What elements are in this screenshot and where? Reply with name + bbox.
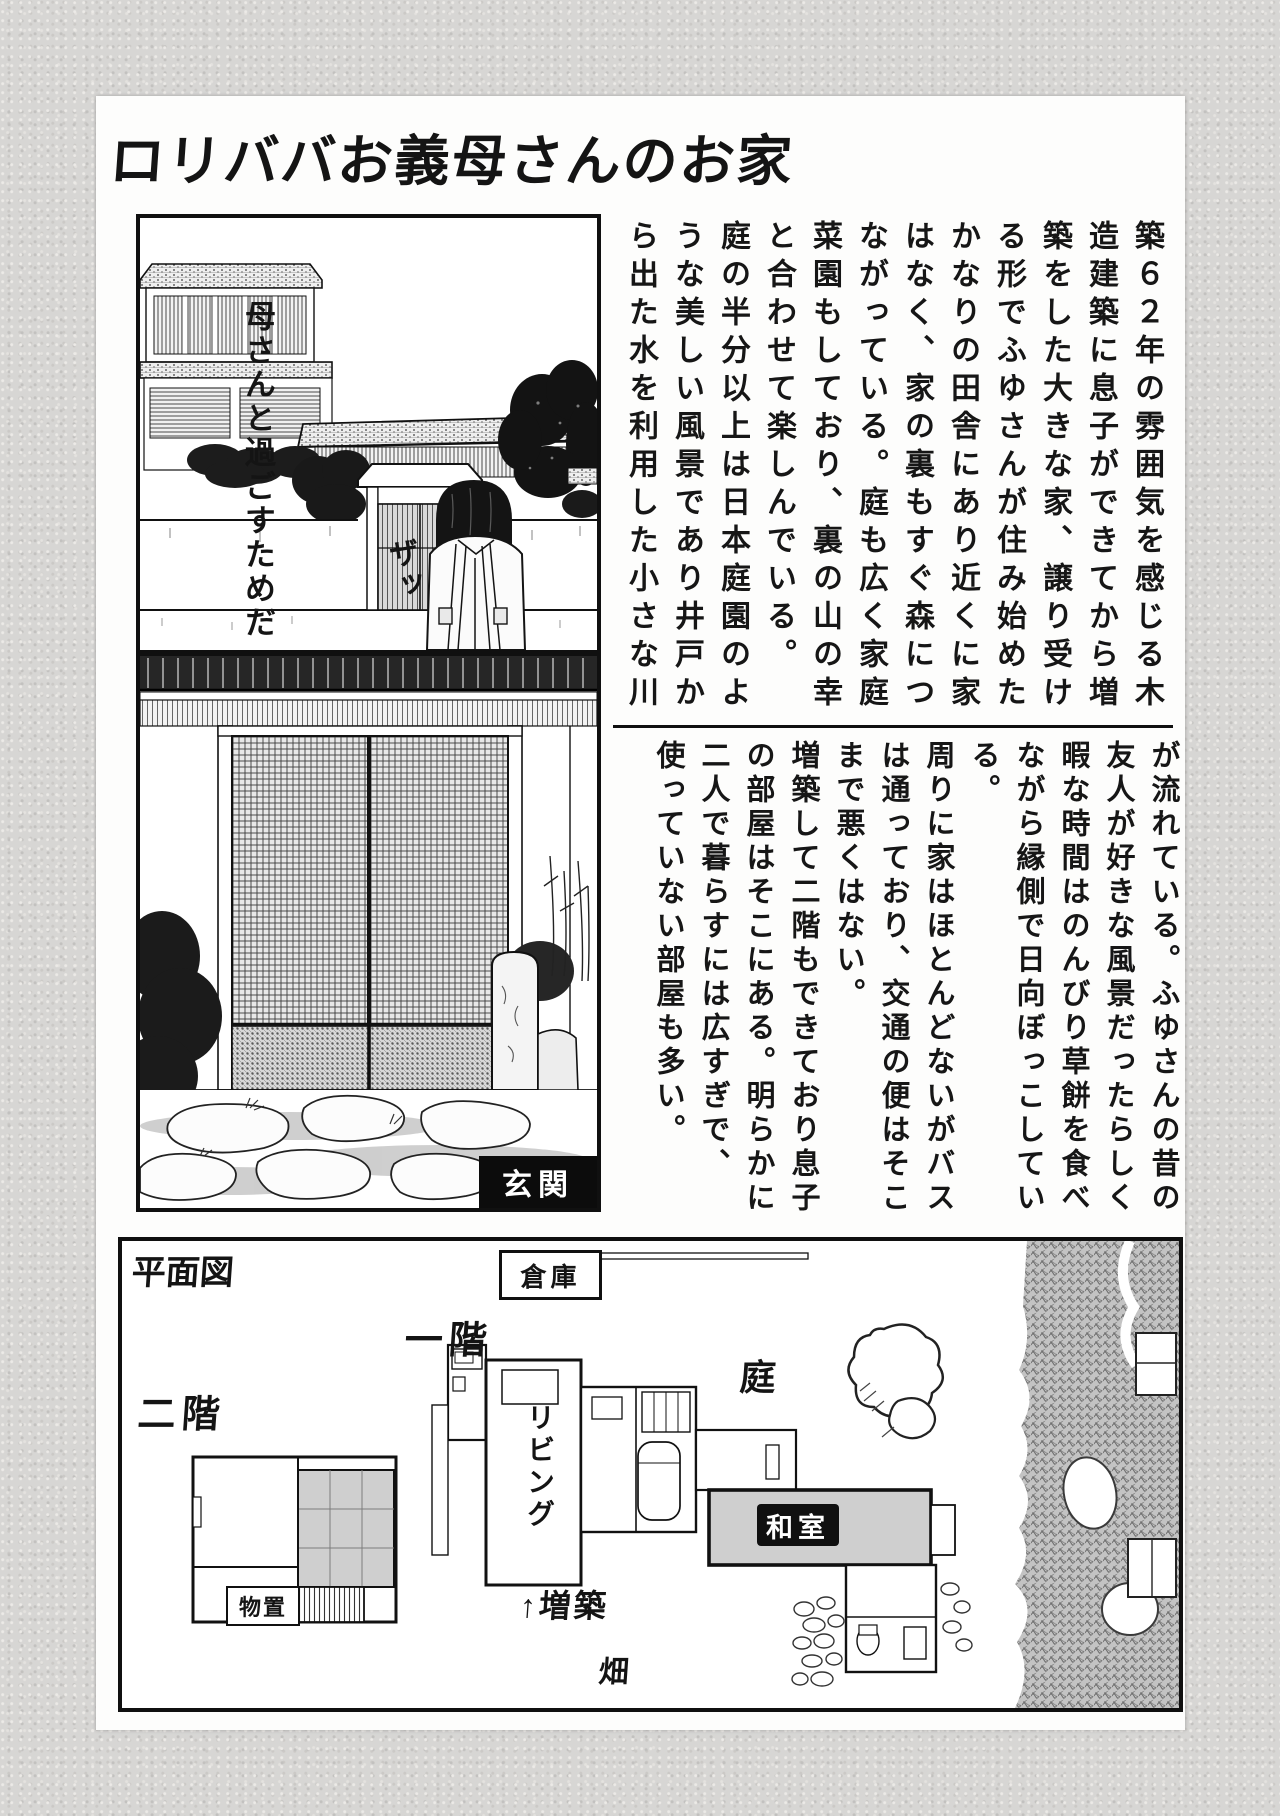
panel-house-exterior: 母さんと過ごすためだ ザッ [136, 214, 601, 654]
panel-entrance: 玄関 [136, 652, 601, 1212]
text-column: うな美しい風景であり井戸か [671, 220, 701, 728]
floor-plan-panel: 平面図 倉庫 一階 庭 二階 リビング 和室 ↑増築 畑 物置 [118, 1237, 1183, 1712]
fence-line [592, 1253, 808, 1259]
text-column: 友人が好きな風景だったらしく [1103, 740, 1132, 1232]
garden-foliage [1015, 1241, 1179, 1708]
intro-text-block: 築６２年の雰囲気を感じる木 造建築に息子ができてから増 築をした大きな家、譲り受… [605, 220, 1161, 728]
floor-plan-illustration [122, 1241, 1179, 1708]
detail-text-block: が流れている。ふゆさんの昔の 友人が好きな風景だったらしく 暇な時間はのんびり草… [621, 740, 1177, 1232]
text-column: は通っており、交通の便はそこ [878, 740, 907, 1232]
entrance-illustration [140, 656, 597, 1208]
text-column: が流れている。ふゆさんの昔の [1148, 740, 1177, 1232]
dialogue-text: 母さんと過ごすためだ [242, 300, 273, 650]
text-column: 周りに家はほとんどないがバス [923, 740, 952, 1232]
text-column: 使っていない部屋も多い。 [653, 740, 682, 1232]
section-divider [613, 725, 1173, 728]
house-exterior-illustration [140, 218, 597, 650]
text-column: ながら縁側で日向ぼっこしてい [1013, 740, 1042, 1232]
text-column: る形でふゆさんが住み始めた [993, 220, 1023, 728]
text-column: ながっている。庭も広く家庭 [855, 220, 885, 728]
paper-background: { "page": { "title": "ロリババお義母さんのお家" }, "… [0, 0, 1280, 1816]
storage-label: 物置 [226, 1586, 300, 1626]
text-column: 庭の半分以上は日本庭園のよ [717, 220, 747, 728]
text-column: ら出た水を利用した小さな川 [625, 220, 655, 728]
entrance-label: 玄関 [479, 1156, 597, 1208]
text-column: 造建築に息子ができてから増 [1085, 220, 1115, 728]
warehouse-label: 倉庫 [499, 1250, 602, 1300]
text-column: 増築して二階もできており息子 [788, 740, 817, 1232]
text-column: る。 [968, 740, 997, 1232]
left-bush [140, 911, 222, 1116]
text-column: かなりの田舎にあり近くに家 [947, 220, 977, 728]
garden-label: 庭 [738, 1349, 778, 1401]
japanese-room-label: 和室 [757, 1504, 839, 1546]
text-column: 築をした大きな家、譲り受け [1039, 220, 1069, 728]
floor-plan-title: 平面図 [130, 1245, 235, 1294]
text-column: まで悪くはない。 [833, 740, 862, 1232]
page-title: ロリババお義母さんのお家 [107, 116, 797, 196]
text-column: 暇な時間はのんびり草餅を食べ [1058, 740, 1087, 1232]
manga-page: ロリババお義母さんのお家 [96, 96, 1185, 1730]
text-column: 築６２年の雰囲気を感じる木 [1131, 220, 1161, 728]
field-label: 畑 [597, 1647, 630, 1691]
text-column: 菜園もしており、裏の山の幸 [809, 220, 839, 728]
living-room-label: リビング [524, 1403, 552, 1573]
text-column: 二人で暮らすには広すぎで、 [698, 740, 727, 1232]
first-floor-label: 一階 [403, 1309, 495, 1364]
extension-label: ↑増築 [518, 1581, 610, 1627]
text-column: と合わせて楽しんでいる。 [763, 220, 793, 728]
tree-right [498, 360, 597, 518]
text-column: の部屋はそこにある。明らかに [743, 740, 772, 1232]
roof-eave [140, 656, 597, 726]
person-figure [427, 480, 525, 650]
text-column: はなく、家の裏もすぐ森につ [901, 220, 931, 728]
second-floor-label: 二階 [136, 1383, 228, 1438]
garden-tree [848, 1325, 942, 1439]
